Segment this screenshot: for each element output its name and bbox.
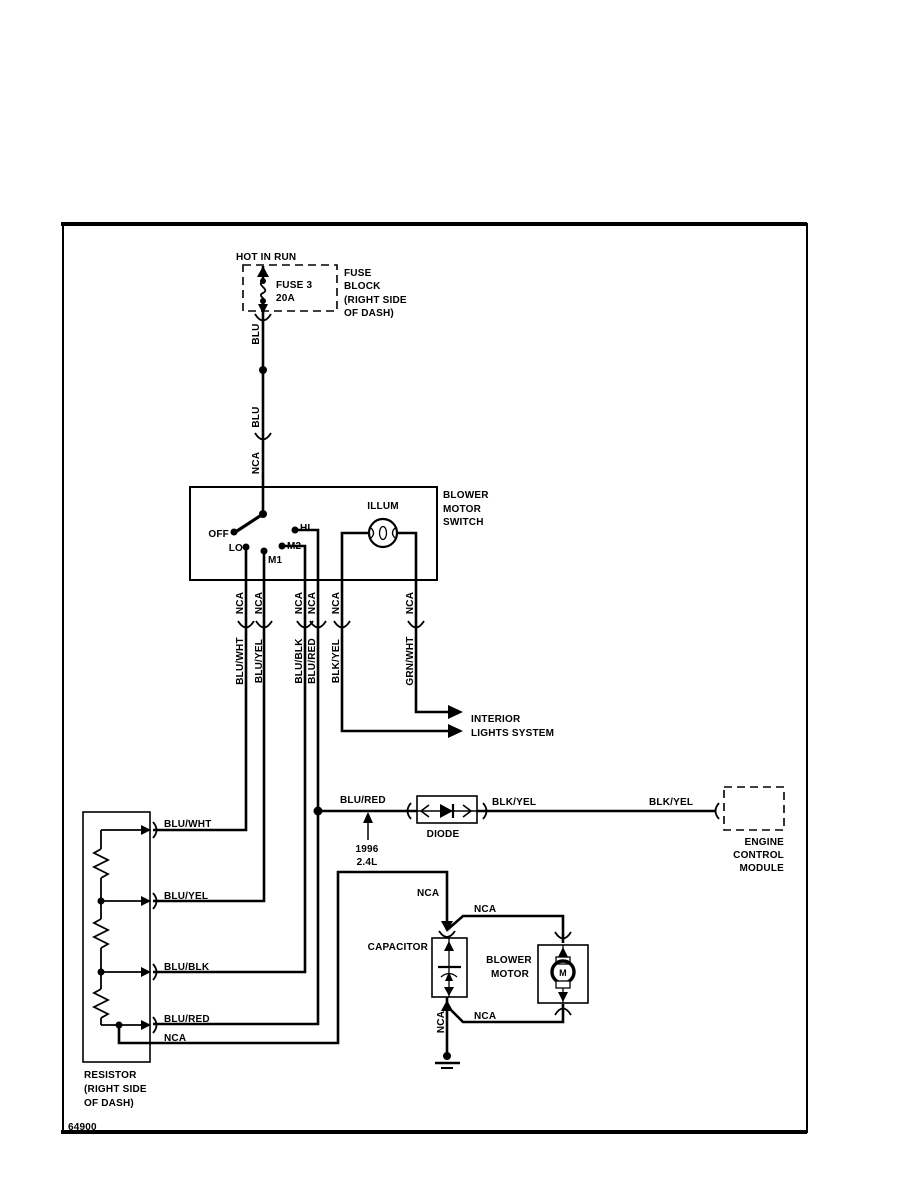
label-fuse-block-note-3: (RIGHT SIDE	[344, 295, 407, 306]
label-nca-motor-bottom: NCA	[474, 1011, 496, 1022]
label-tap-blu-wht: BLU/WHT	[164, 819, 212, 830]
label-motor: MOTOR	[491, 969, 530, 980]
label-pos-hi: HI	[300, 523, 310, 534]
illumination-lamp: ILLUM	[342, 501, 416, 580]
label-color-blu-yel: BLU/YEL	[254, 639, 265, 683]
ground-icon	[443, 1052, 451, 1060]
label-ecm-3: MODULE	[739, 863, 784, 874]
switch-output-wires: NCA NCA NCA NCA NCA NCA BLU/WHT BLU/YEL …	[153, 580, 448, 1024]
label-switch-name-2: MOTOR	[443, 504, 482, 515]
label-fuse-block-note-4: OF DASH)	[344, 308, 394, 319]
inline-connectors	[238, 621, 424, 628]
label-nca-2: NCA	[254, 592, 265, 614]
label-fuse-block-note-1: FUSE	[344, 268, 372, 279]
label-nca-motor-top: NCA	[474, 904, 496, 915]
splice-dot	[259, 366, 267, 374]
capacitor: CAPACITOR	[368, 921, 467, 997]
label-blk-yel-far: BLK/YEL	[649, 797, 693, 808]
label-fuse-block-note-2: BLOCK	[344, 281, 381, 292]
label-fuse-name: FUSE 3	[276, 280, 312, 291]
label-lights-system: LIGHTS SYSTEM	[471, 728, 554, 739]
diode-symbol: DIODE	[408, 796, 487, 840]
label-nca-feed: NCA	[417, 888, 439, 899]
arrow-right-icon	[448, 724, 463, 738]
label-switch-name-3: SWITCH	[443, 517, 484, 528]
fuse-block: HOT IN RUN FUSE 3 20A FUSE BLOCK (RIGHT …	[236, 252, 407, 321]
blower-motor: NCA NCA M BLOWER MOTOR	[447, 904, 588, 1022]
label-ecm-2: CONTROL	[733, 850, 784, 861]
variant-callout: 1996 2.4L	[355, 812, 378, 868]
label-variant-year: 1996	[355, 844, 378, 855]
arrow-right-icon	[448, 705, 463, 719]
label-diode: DIODE	[427, 829, 460, 840]
interior-lights-destination: INTERIOR LIGHTS SYSTEM	[448, 705, 554, 739]
label-nca-4: NCA	[307, 592, 318, 614]
drawing-number: 64900	[68, 1122, 97, 1133]
label-variant-engine: 2.4L	[357, 857, 378, 868]
label-color-blu-blk: BLU/BLK	[294, 638, 305, 684]
label-tap-blu-blk: BLU/BLK	[164, 962, 210, 973]
wiring-diagram-svg: HOT IN RUN FUSE 3 20A FUSE BLOCK (RIGHT …	[0, 0, 918, 1188]
label-tap-blu-yel: BLU/YEL	[164, 891, 208, 902]
label-motor-m: M	[559, 968, 567, 978]
label-blower: BLOWER	[486, 955, 532, 966]
resistor-tap-connectors	[141, 822, 157, 1033]
label-resistor-note-3: OF DASH)	[84, 1098, 134, 1109]
wire-blu-wht	[153, 580, 246, 830]
ground: NCA	[435, 997, 460, 1068]
label-ecm-1: ENGINE	[744, 837, 784, 848]
label-pos-lo: LO	[229, 543, 243, 554]
label-wire-blu-lower: BLU	[251, 406, 262, 427]
wiring-diagram-page: HOT IN RUN FUSE 3 20A FUSE BLOCK (RIGHT …	[0, 0, 918, 1188]
wire-blu-blk	[153, 580, 305, 972]
label-wire-nca: NCA	[251, 452, 262, 474]
label-illum: ILLUM	[367, 501, 399, 512]
engine-control-module: ENGINE CONTROL MODULE	[716, 787, 785, 874]
label-interior: INTERIOR	[471, 714, 521, 725]
label-hot-in-run: HOT IN RUN	[236, 252, 296, 263]
label-nca-6: NCA	[405, 592, 416, 614]
label-nca-ground: NCA	[436, 1011, 447, 1033]
label-nca-3: NCA	[294, 592, 305, 614]
wire-blk-yel	[342, 580, 448, 731]
label-pos-m1: M1	[268, 555, 283, 566]
resistor-elements	[94, 830, 141, 1025]
label-nca-5: NCA	[331, 592, 342, 614]
label-color-blk-yel: BLK/YEL	[331, 639, 342, 683]
label-blk-yel-near: BLK/YEL	[492, 797, 536, 808]
diode-branch: BLU/RED BLK/YEL BLK/YEL DIODE 1996 2.4L …	[314, 787, 785, 874]
label-switch-name-1: BLOWER	[443, 490, 489, 501]
label-resistor-note-2: (RIGHT SIDE	[84, 1084, 147, 1095]
switch-contacts: OFF LO M1 M2 HI	[208, 510, 318, 580]
label-color-blu-red: BLU/RED	[307, 638, 318, 684]
label-capacitor: CAPACITOR	[368, 942, 429, 953]
label-blu-red: BLU/RED	[340, 795, 386, 806]
label-nca-1: NCA	[235, 592, 246, 614]
label-pos-off: OFF	[208, 529, 229, 540]
switch-arm	[237, 514, 263, 531]
resistor-block: BLU/WHT BLU/YEL BLU/BLK BLU/RED NCA RESI…	[83, 812, 212, 1109]
label-color-blu-wht: BLU/WHT	[235, 637, 246, 685]
label-fuse-rating: 20A	[276, 293, 295, 304]
label-color-grn-wht: GRN/WHT	[405, 636, 416, 685]
blower-motor-switch: BLOWER MOTOR SWITCH OFF LO M1 M2 HI ILLU…	[190, 487, 489, 580]
wire-grn-wht	[416, 580, 448, 712]
wire-nca-motor-bottom	[447, 1004, 563, 1022]
label-resistor-note-1: RESISTOR	[84, 1070, 137, 1081]
label-wire-blu-upper: BLU	[251, 323, 262, 344]
label-tap-blu-red: BLU/RED	[164, 1014, 210, 1025]
